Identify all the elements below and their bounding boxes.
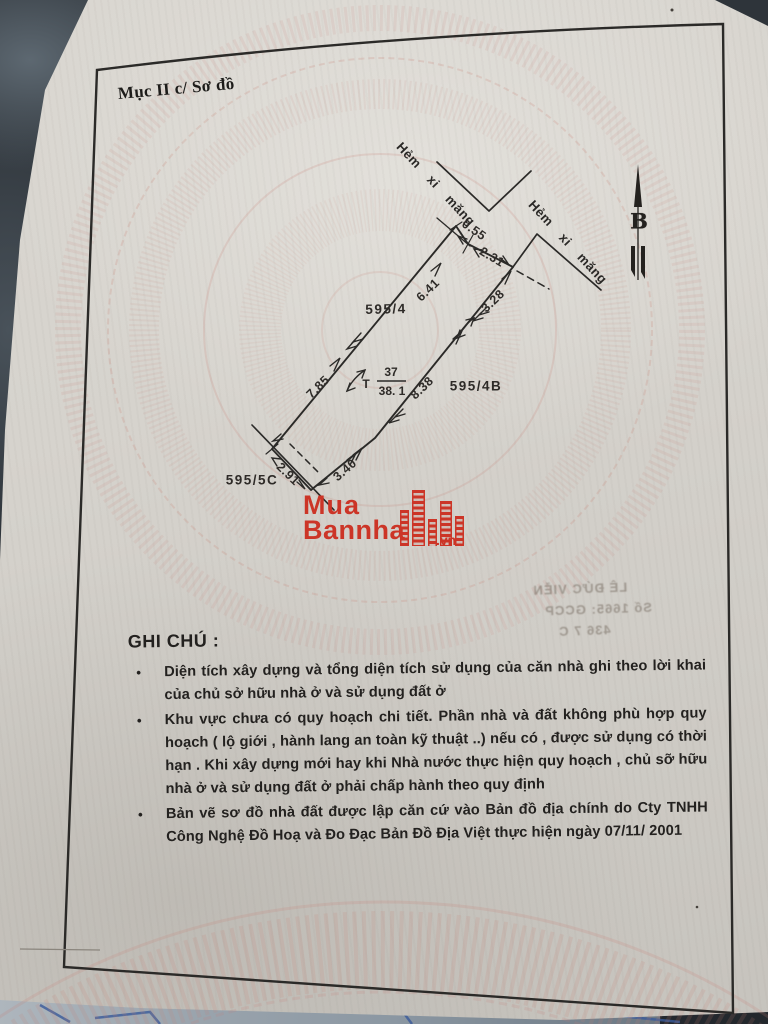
plot-outline: [272, 226, 513, 490]
north-letter: B: [630, 209, 648, 234]
scanned-document-photo: Mục II c/ Sơ đồ Hẻm xi măng Hẻm xi măng …: [0, 0, 768, 1024]
note-item: • Bản vẽ sơ đồ nhà đất được lập căn cứ v…: [128, 796, 709, 849]
muabannha-logo: Mua Bannha .vn: [300, 492, 480, 552]
plot-number: 37: [384, 365, 397, 379]
parcel-label-595-4b: 595/4B: [450, 379, 503, 394]
logo-text-line2: Bannha: [303, 516, 405, 544]
bullet-icon: •: [128, 803, 155, 849]
note-text: Diện tích xây dựng và tổng diện tích sử …: [152, 654, 707, 707]
note-text: Bản vẽ sơ đồ nhà đất được lập căn cứ vào…: [154, 796, 709, 849]
note-text: Khu vực chưa có quy hoạch chi tiết. Phần…: [153, 702, 708, 801]
dimension-arrows: [272, 236, 511, 489]
plot-marker: T: [362, 377, 369, 391]
bullet-icon: •: [126, 661, 153, 707]
note-item: • Khu vực chưa có quy hoạch chi tiết. Ph…: [127, 702, 708, 801]
parcel-label-595-5c: 595/5C: [226, 473, 279, 488]
pencil-mark: [20, 949, 100, 950]
bullet-icon: •: [127, 709, 154, 801]
logo-buildings-icon: [400, 488, 464, 546]
dashed-extension-right: [517, 271, 549, 289]
notes-section: GHI CHÚ : • Diện tích xây dựng và tổng d…: [126, 624, 709, 851]
plot-area: 38. 1: [379, 384, 406, 398]
parcel-label-595-4: 595/4: [365, 301, 407, 317]
note-item: • Diện tích xây dựng và tổng diện tích s…: [126, 654, 707, 707]
